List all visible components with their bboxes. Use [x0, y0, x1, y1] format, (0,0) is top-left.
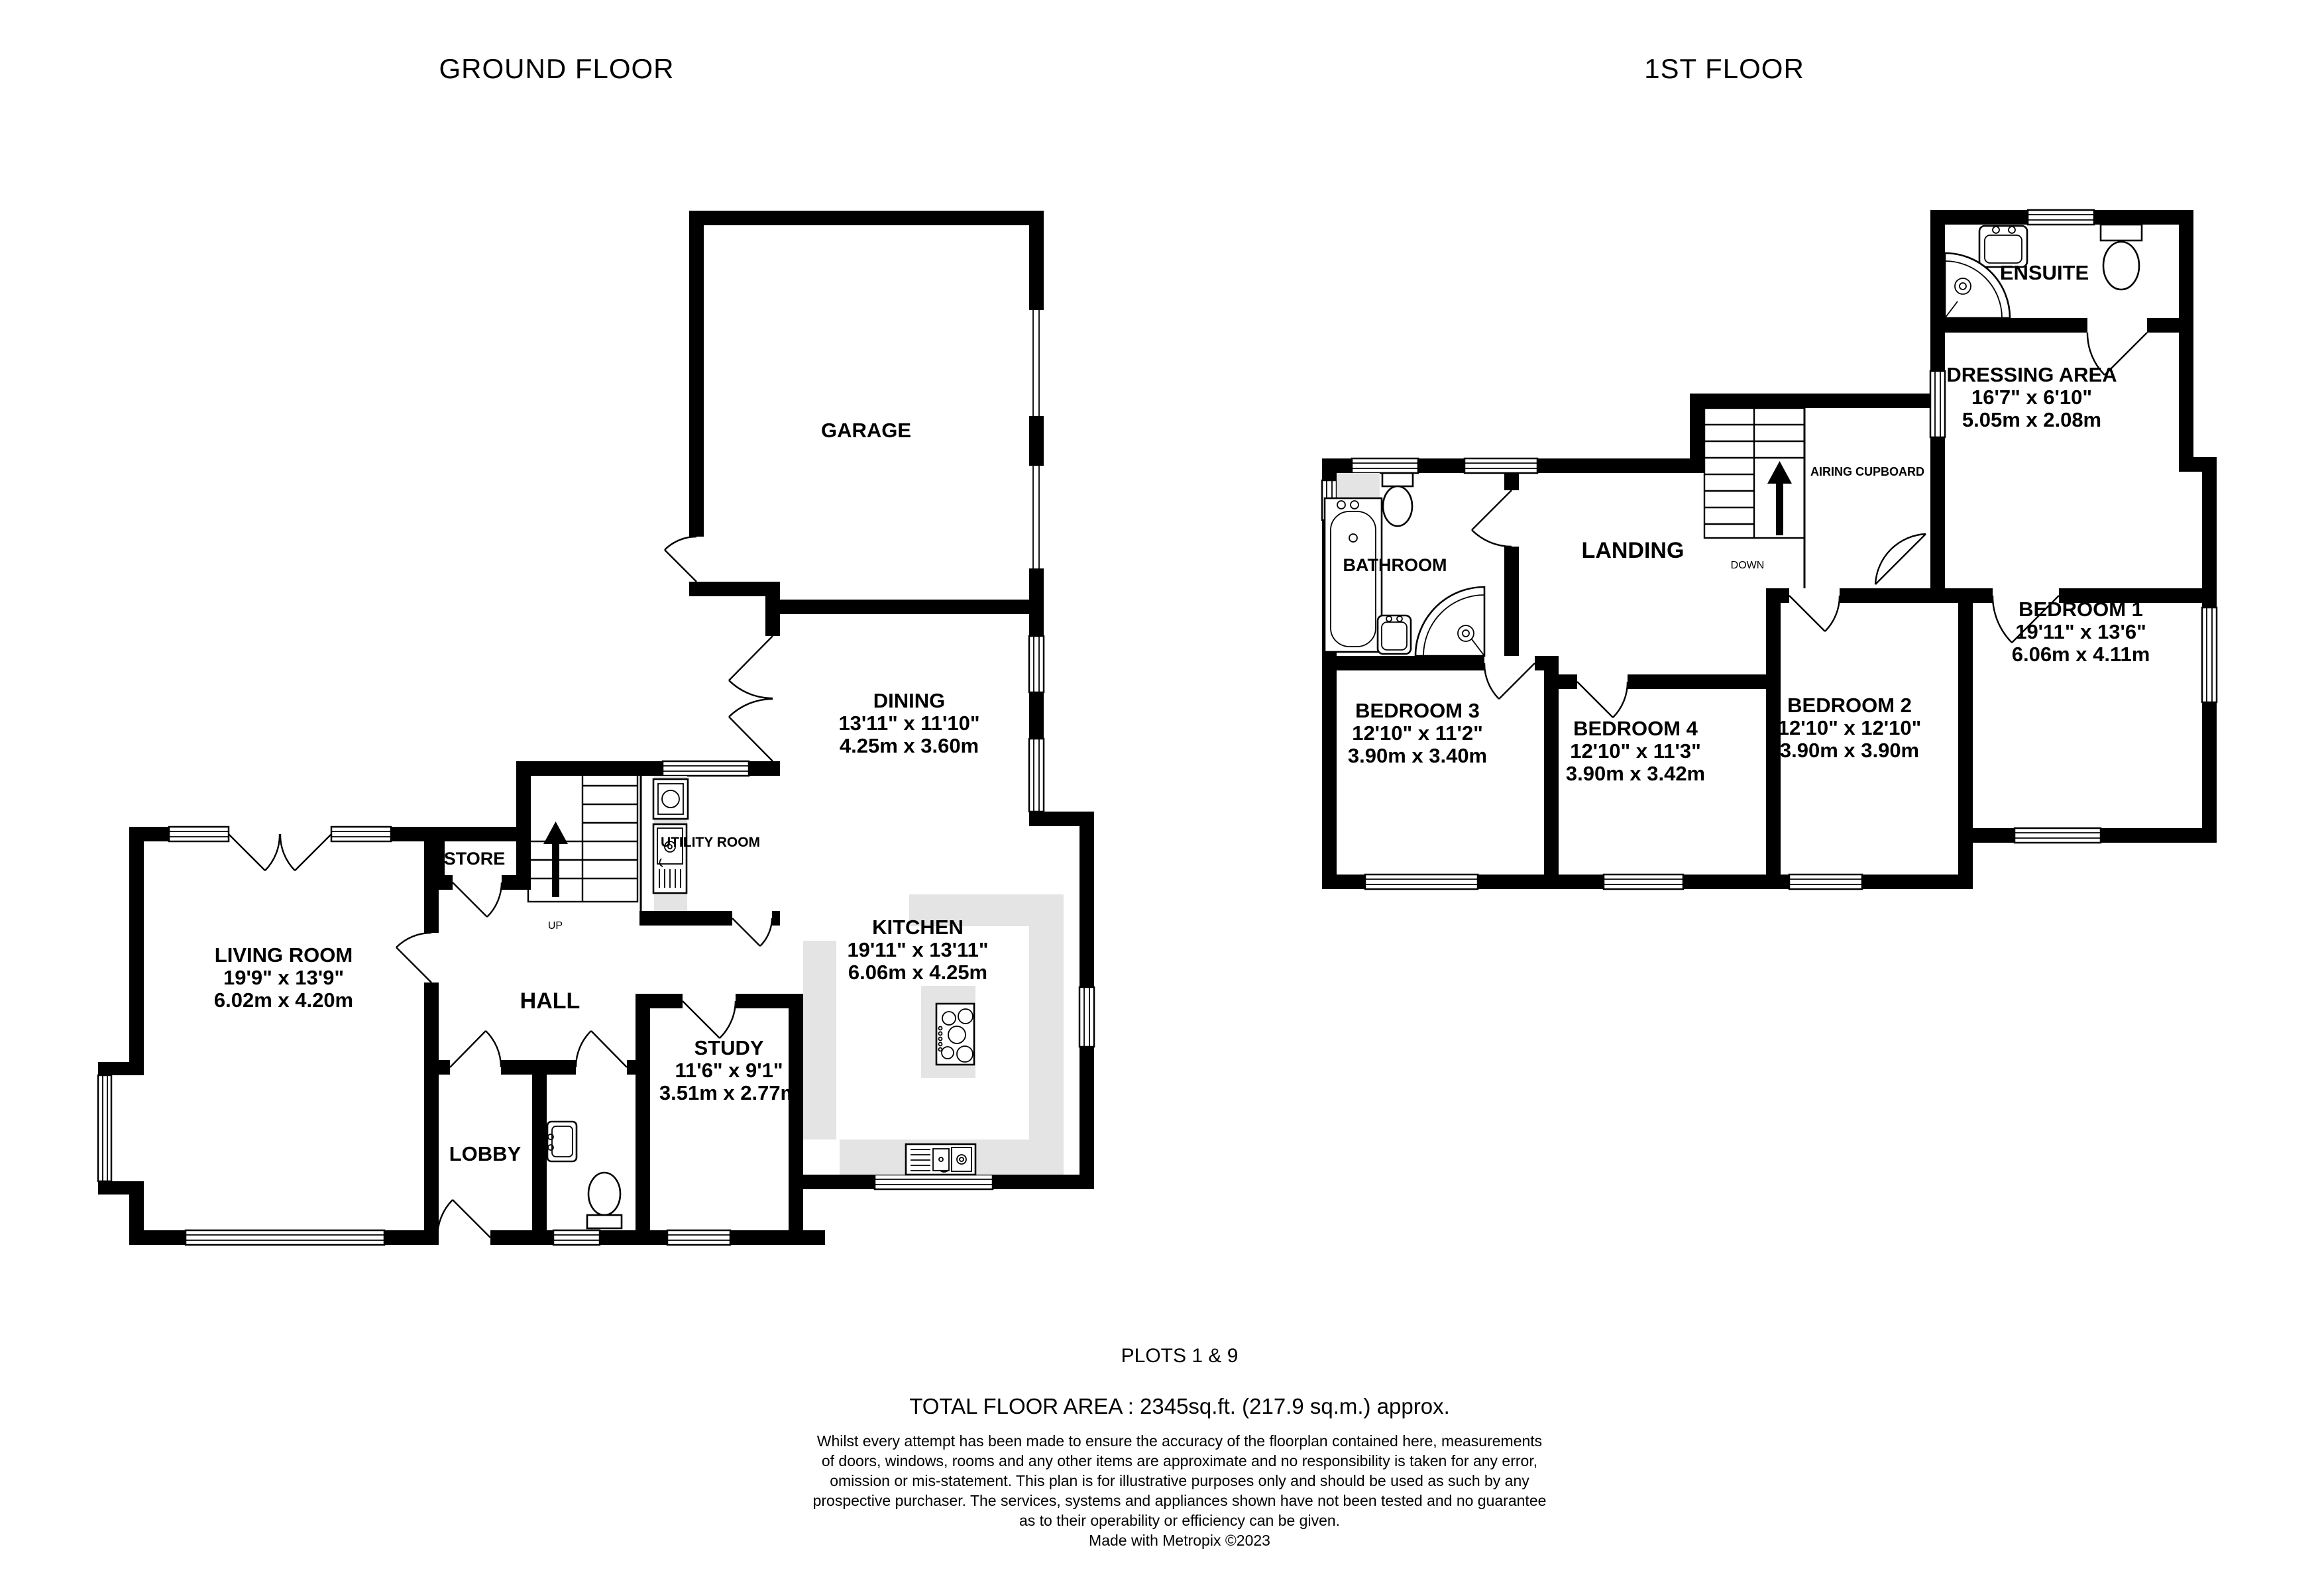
dressing-area-label: DRESSING AREA 16'7" x 6'10" 5.05m x 2.08… — [1946, 363, 2117, 431]
hob-icon — [936, 1004, 974, 1065]
svg-text:12'10" x 12'10": 12'10" x 12'10" — [1778, 716, 1922, 739]
window — [1930, 371, 1945, 437]
bathroom-sink-icon — [1378, 615, 1411, 654]
window — [1365, 875, 1478, 889]
svg-text:BEDROOM 2: BEDROOM 2 — [1787, 694, 1912, 717]
footer: PLOTS 1 & 9 TOTAL FLOOR AREA : 2345sq.ft… — [630, 1345, 1730, 1550]
study-door — [683, 1001, 736, 1038]
window — [1029, 739, 1044, 812]
plots-label: PLOTS 1 & 9 — [630, 1345, 1730, 1367]
living-room-label: LIVING ROOM 19'9" x 13'9" 6.02m x 4.20m — [214, 943, 353, 1012]
washing-machine-icon — [653, 779, 688, 819]
svg-text:3.90m x 3.90m: 3.90m x 3.90m — [1780, 739, 1919, 762]
store-door — [453, 882, 502, 917]
wc-fixtures — [547, 1122, 622, 1228]
bathroom-door — [1472, 490, 1512, 547]
svg-text:3.51m x 2.77m: 3.51m x 2.77m — [659, 1081, 799, 1104]
metropix-credit: Made with Metropix ©2023 — [630, 1530, 1730, 1550]
svg-text:12'10" x 11'2": 12'10" x 11'2" — [1352, 721, 1483, 745]
window — [1789, 875, 1862, 889]
ground-floor-title: GROUND FLOOR — [439, 53, 674, 84]
window — [553, 1230, 600, 1245]
utility-room-label: UTILITY ROOM — [661, 835, 760, 850]
window — [1465, 458, 1537, 473]
first-floor-plan: 1ST FLOOR — [1322, 53, 2217, 889]
ff-room-labels: BEDROOM 1 19'11" x 13'6" 6.06m x 4.11m B… — [1343, 261, 2150, 785]
wc-sink-icon — [547, 1122, 577, 1161]
svg-text:4.25m x 3.60m: 4.25m x 3.60m — [840, 734, 979, 757]
svg-text:KITCHEN: KITCHEN — [872, 916, 964, 939]
svg-text:6.06m x 4.25m: 6.06m x 4.25m — [848, 961, 987, 984]
window — [2028, 210, 2094, 225]
disclaimer-line: omission or mis-statement. This plan is … — [630, 1471, 1730, 1491]
disclaimer-line: Whilst every attempt has been made to en… — [630, 1431, 1730, 1451]
wc-door — [576, 1031, 627, 1067]
ff-walls — [1322, 210, 2217, 889]
window — [331, 827, 391, 841]
shower-icon — [1415, 587, 1484, 656]
gf-doors — [229, 537, 773, 1238]
kitchen-sink-icon — [906, 1144, 975, 1175]
landing-label: LANDING — [1582, 538, 1685, 563]
dining-double-doors — [729, 636, 773, 761]
total-floor-area: TOTAL FLOOR AREA : 2345sq.ft. (217.9 sq.… — [630, 1394, 1730, 1419]
garage-side-door — [665, 537, 696, 582]
window — [169, 827, 229, 841]
svg-text:STUDY: STUDY — [694, 1036, 763, 1059]
stairs-down-arrow-icon — [1767, 461, 1792, 535]
garage-label: GARAGE — [821, 419, 911, 442]
window — [1352, 458, 1418, 473]
window — [667, 1230, 730, 1245]
utility-door — [732, 918, 772, 946]
svg-text:DRESSING AREA: DRESSING AREA — [1946, 363, 2117, 386]
svg-text:19'9" x 13'9": 19'9" x 13'9" — [223, 966, 344, 989]
window — [2202, 608, 2217, 702]
airing-cupboard-label: AIRING CUPBOARD — [1810, 465, 1924, 478]
stairs-up-label: UP — [548, 920, 563, 931]
store-label: STORE — [444, 849, 506, 869]
window — [875, 1175, 993, 1189]
svg-text:BEDROOM 3: BEDROOM 3 — [1355, 699, 1480, 722]
floorplan-page: { "titles": { "ground": "GROUND FLOOR", … — [0, 0, 2324, 1594]
bedroom3-label: BEDROOM 3 12'10" x 11'2" 3.90m x 3.40m — [1348, 699, 1487, 767]
bedroom3-door — [1484, 663, 1535, 699]
window — [2015, 828, 2101, 843]
svg-text:BEDROOM 1: BEDROOM 1 — [2019, 598, 2143, 621]
bay-window — [98, 1075, 111, 1181]
study-label: STUDY 11'6" x 9'1" 3.51m x 2.77m — [659, 1036, 799, 1104]
toilet-icon — [1382, 473, 1413, 526]
living-french-doors — [229, 834, 331, 871]
ff-stairs: DOWN — [1704, 408, 1804, 571]
svg-text:BEDROOM 4: BEDROOM 4 — [1573, 717, 1698, 740]
svg-text:11'6" x 9'1": 11'6" x 9'1" — [675, 1059, 783, 1082]
svg-text:3.90m x 3.40m: 3.90m x 3.40m — [1348, 744, 1487, 767]
disclaimer-line: prospective purchaser. The services, sys… — [630, 1491, 1730, 1511]
bathroom-label: BATHROOM — [1343, 555, 1447, 575]
lobby-door — [450, 1031, 501, 1067]
airing-cupboard-door — [1875, 534, 1926, 584]
wc-toilet-icon — [587, 1173, 622, 1228]
stairs-down-label: DOWN — [1731, 560, 1765, 571]
bedroom4-door — [1577, 682, 1628, 717]
dining-label: DINING 13'11" x 11'10" 4.25m x 3.60m — [838, 689, 979, 757]
svg-text:LIVING ROOM: LIVING ROOM — [215, 943, 353, 967]
svg-text:DINING: DINING — [873, 689, 946, 712]
svg-text:19'11" x 13'6": 19'11" x 13'6" — [2015, 620, 2146, 643]
svg-text:6.06m x 4.11m: 6.06m x 4.11m — [2012, 643, 2150, 666]
gf-room-labels: GARAGE DINING 13'11" x 11'10" 4.25m x 3.… — [214, 419, 989, 1165]
window — [663, 761, 749, 776]
svg-text:12'10" x 11'3": 12'10" x 11'3" — [1570, 739, 1701, 763]
svg-text:16'7" x 6'10": 16'7" x 6'10" — [1971, 386, 2092, 409]
svg-text:3.90m x 3.42m: 3.90m x 3.42m — [1566, 762, 1705, 785]
hall-label: HALL — [520, 988, 581, 1014]
window — [186, 1230, 384, 1245]
bath-icon — [1325, 498, 1382, 652]
svg-text:6.02m x 4.20m: 6.02m x 4.20m — [214, 988, 353, 1012]
window — [1029, 636, 1044, 692]
living-room-door — [396, 933, 431, 983]
gf-stairs: UP — [528, 770, 637, 931]
window — [1604, 875, 1683, 889]
bedroom1-label: BEDROOM 1 19'11" x 13'6" 6.06m x 4.11m — [2012, 598, 2150, 666]
svg-text:13'11" x 11'10": 13'11" x 11'10" — [838, 712, 979, 735]
lobby-label: LOBBY — [449, 1142, 522, 1165]
disclaimer-line: of doors, windows, rooms and any other i… — [630, 1451, 1730, 1471]
bedroom2-label: BEDROOM 2 12'10" x 12'10" 3.90m x 3.90m — [1778, 694, 1922, 762]
svg-text:19'11" x 13'11": 19'11" x 13'11" — [847, 938, 988, 961]
ensuite-label: ENSUITE — [2000, 261, 2089, 284]
ensuite-toilet-icon — [2101, 225, 2142, 290]
svg-text:5.05m x 2.08m: 5.05m x 2.08m — [1962, 408, 2101, 431]
front-door — [437, 1200, 490, 1238]
window — [1079, 987, 1094, 1047]
bedroom2-door — [1789, 596, 1840, 631]
bedroom4-label: BEDROOM 4 12'10" x 11'3" 3.90m x 3.42m — [1566, 717, 1705, 785]
first-floor-title: 1ST FLOOR — [1644, 53, 1804, 84]
ground-floor-plan: GROUND FLOOR — [98, 53, 1094, 1245]
disclaimer-line: as to their operability or efficiency ca… — [630, 1511, 1730, 1530]
